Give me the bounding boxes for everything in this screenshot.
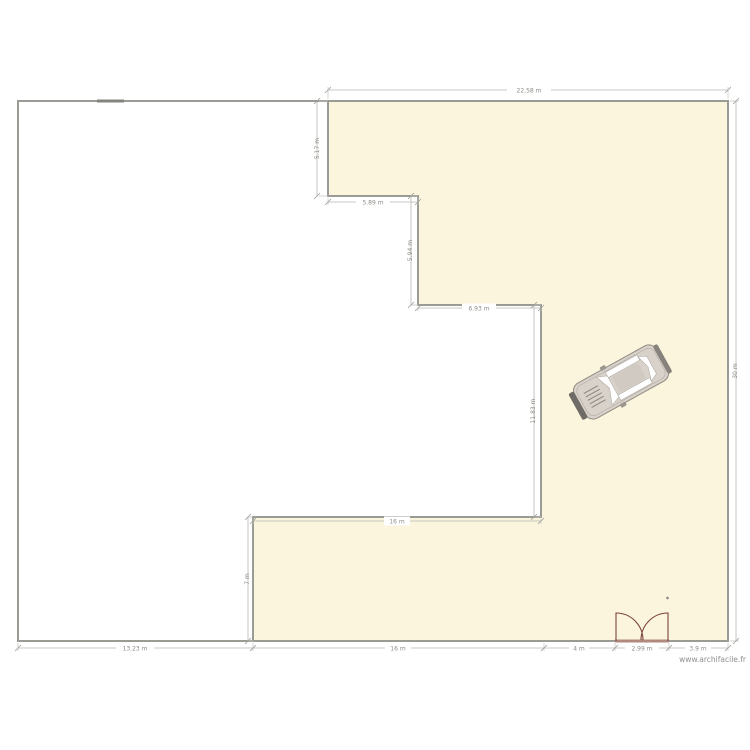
small-marker-dot <box>666 597 669 600</box>
dim-label-step2-width[interactable]: 6.93 m <box>468 305 489 312</box>
dim-label-bottom-left-width[interactable]: 13.23 m <box>123 645 148 652</box>
dim-label-step1-width[interactable]: 5.89 m <box>362 199 383 206</box>
dimension-top-width: 22.58 m <box>325 86 731 100</box>
dim-label-lower-left-height[interactable]: 7 m <box>244 573 251 585</box>
dim-label-door-width[interactable]: 2.99 m <box>631 645 652 652</box>
dim-label-upper-left-height[interactable]: 5.17 m <box>314 138 321 159</box>
dim-label-bottom-right-width[interactable]: 3.9 m <box>689 645 706 652</box>
dim-label-top-width[interactable]: 22.58 m <box>517 87 542 94</box>
dimension-right-height: 30 m <box>730 98 739 644</box>
floorplan-canvas: 22.58 m 5.17 m 5.89 m 5.94 m 6.93 m 11.8… <box>0 0 750 750</box>
dim-label-step1-height[interactable]: 5.94 m <box>407 240 414 261</box>
dimension-bottom-chain: 13.23 m 16 m 4 m 2.99 m 3.9 m <box>15 643 731 653</box>
archifacile-watermark-link[interactable]: www.archifacile.fr <box>679 655 747 664</box>
floorplan-svg: 22.58 m 5.17 m 5.89 m 5.94 m 6.93 m 11.8… <box>0 0 750 750</box>
door-threshold <box>615 640 669 643</box>
dim-label-right-height[interactable]: 30 m <box>732 363 739 379</box>
dim-label-step2-height[interactable]: 11.83 m <box>530 398 537 423</box>
dim-label-bottom-seg2-width[interactable]: 4 m <box>573 645 585 652</box>
dim-label-bottom-main-width[interactable]: 16 m <box>390 645 406 652</box>
dim-label-mid-width[interactable]: 16 m <box>389 518 405 525</box>
